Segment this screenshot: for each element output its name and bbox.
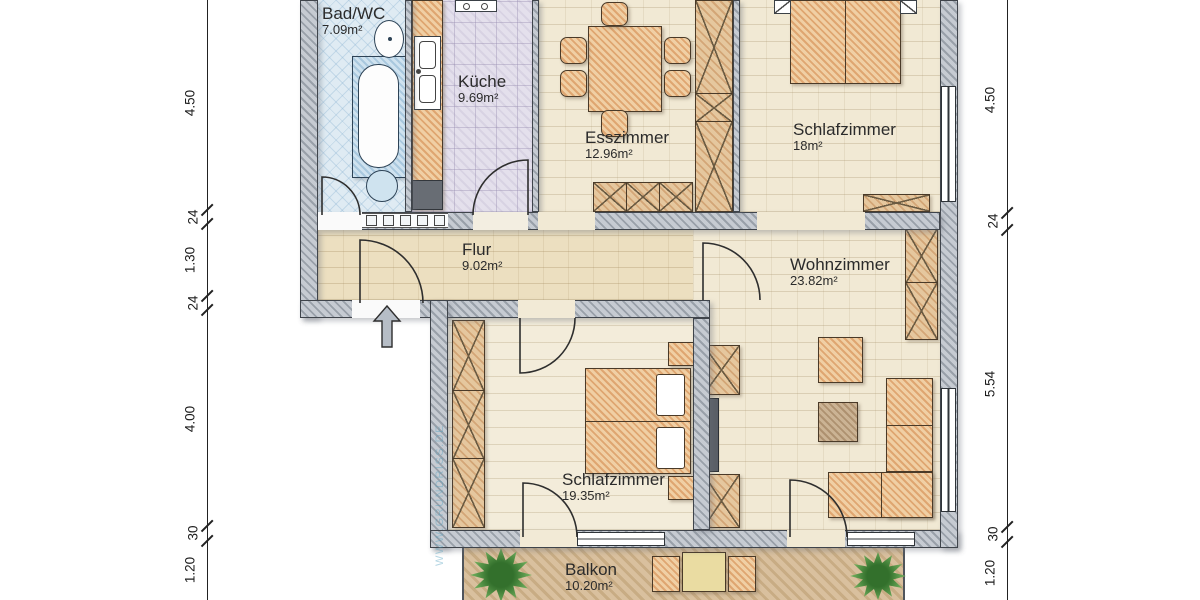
room-label-kitchen: Küche 9.69m²	[458, 72, 506, 106]
room-area: 7.09m²	[322, 23, 385, 38]
dimension-label: 30	[186, 525, 201, 540]
passage-opening	[538, 212, 595, 230]
room-label-balcony: Balkon 10.20m²	[565, 560, 617, 594]
entrance-opening	[352, 300, 420, 318]
kitchen-appliance	[412, 180, 443, 210]
wardrobe	[905, 228, 938, 284]
floor-plan: Bad/WC 7.09m² Küche 9.69m² Esszimmer 12.…	[0, 0, 1200, 600]
pillow	[656, 374, 685, 416]
watermark: WWW.GRUNDRISS.DE	[434, 424, 446, 566]
wardrobe	[695, 0, 733, 95]
glass-block	[366, 215, 377, 226]
bed-mattress	[790, 0, 846, 84]
room-label-living: Wohnzimmer 23.82m²	[790, 255, 890, 289]
room-area: 9.02m²	[462, 259, 502, 274]
sink-basin	[419, 75, 436, 103]
lowboard	[863, 194, 930, 212]
nightstand	[668, 342, 694, 366]
sofa-cushion-line	[881, 473, 882, 517]
door-opening	[473, 212, 528, 230]
coffee-table	[818, 337, 863, 383]
toilet-drain	[388, 37, 392, 41]
bathtub-surround	[352, 56, 406, 178]
wall	[300, 0, 318, 318]
dimension-line-left	[207, 0, 208, 600]
room-label-hallway: Flur 9.02m²	[462, 240, 502, 274]
dimension-label: 30	[986, 526, 1001, 541]
room-name: Küche	[458, 72, 506, 91]
glass-block	[417, 215, 428, 226]
sofa-cushion-line	[887, 425, 932, 426]
balcony-table	[682, 552, 726, 592]
sideboard	[659, 182, 693, 212]
bed-divider	[586, 421, 690, 422]
glass-block	[383, 215, 394, 226]
room-label-bedroom2: Schlafzimmer 19.35m²	[562, 470, 665, 504]
wall	[693, 318, 710, 530]
burner	[463, 3, 470, 10]
window	[941, 86, 956, 202]
nightstand	[900, 0, 917, 14]
room-name: Wohnzimmer	[790, 255, 890, 274]
wardrobe	[905, 282, 938, 340]
dimension-label: 24	[186, 295, 201, 310]
room-label-bathroom: Bad/WC 7.09m²	[322, 4, 385, 38]
armchair	[818, 402, 858, 442]
dining-table	[588, 26, 662, 112]
sink-basin	[419, 41, 436, 69]
glass-block	[434, 215, 445, 226]
window	[847, 532, 915, 546]
glass-block-wall	[362, 213, 448, 228]
dimension-line-right	[1007, 0, 1008, 600]
wall	[532, 0, 539, 212]
sofa	[828, 472, 933, 518]
door-opening	[518, 300, 575, 318]
bathtub	[358, 64, 399, 168]
sideboard	[626, 182, 660, 212]
dimension-label: 1.20	[983, 560, 998, 586]
stove	[455, 0, 497, 12]
chair	[664, 70, 691, 97]
dimension-label: 4.00	[183, 406, 198, 432]
balcony-door-opening	[787, 530, 845, 548]
chair	[601, 2, 628, 26]
chair	[560, 70, 587, 97]
room-name: Balkon	[565, 560, 617, 579]
wardrobe	[452, 320, 485, 392]
dimension-label: 1.20	[183, 557, 198, 583]
dimension-label: 24	[986, 213, 1001, 228]
dimension-label: 5.54	[983, 371, 998, 397]
washbasin	[366, 170, 398, 202]
wardrobe	[452, 390, 485, 460]
window	[577, 532, 665, 546]
wall	[733, 0, 740, 212]
room-name: Bad/WC	[322, 4, 385, 23]
wardrobe	[695, 121, 733, 212]
room-area: 12.96m²	[585, 147, 669, 162]
room-area: 9.69m²	[458, 91, 506, 106]
double-bed	[585, 368, 691, 474]
nightstand	[774, 0, 791, 14]
bed-mattress	[845, 0, 901, 84]
sideboard	[593, 182, 627, 212]
room-name: Flur	[462, 240, 502, 259]
pillow	[656, 427, 685, 469]
passage-opening	[757, 212, 865, 230]
balcony-door-opening	[520, 530, 577, 548]
kitchen-sink	[414, 36, 441, 110]
chair	[560, 37, 587, 64]
burner	[481, 3, 488, 10]
dimension-label: 4.50	[983, 87, 998, 113]
room-area: 18m²	[793, 139, 896, 154]
room-label-dining: Esszimmer 12.96m²	[585, 128, 669, 162]
hallway-floor	[318, 228, 693, 300]
wardrobe	[452, 458, 485, 528]
chair	[664, 37, 691, 64]
balcony-chair	[652, 556, 680, 592]
dimension-label: 24	[186, 209, 201, 224]
room-label-bedroom1: Schlafzimmer 18m²	[793, 120, 896, 154]
window	[941, 388, 956, 512]
dimension-label: 4.50	[183, 90, 198, 116]
room-name: Schlafzimmer	[793, 120, 896, 139]
balcony-chair	[728, 556, 756, 592]
room-area: 19.35m²	[562, 489, 665, 504]
room-area: 23.82m²	[790, 274, 890, 289]
door-opening	[318, 212, 362, 230]
glass-block	[400, 215, 411, 226]
wardrobe	[695, 93, 733, 123]
faucet	[416, 69, 421, 74]
room-area: 10.20m²	[565, 579, 617, 594]
room-name: Esszimmer	[585, 128, 669, 147]
wall	[405, 0, 412, 212]
dimension-label: 1.30	[183, 247, 198, 273]
nightstand	[668, 476, 694, 500]
room-name: Schlafzimmer	[562, 470, 665, 489]
